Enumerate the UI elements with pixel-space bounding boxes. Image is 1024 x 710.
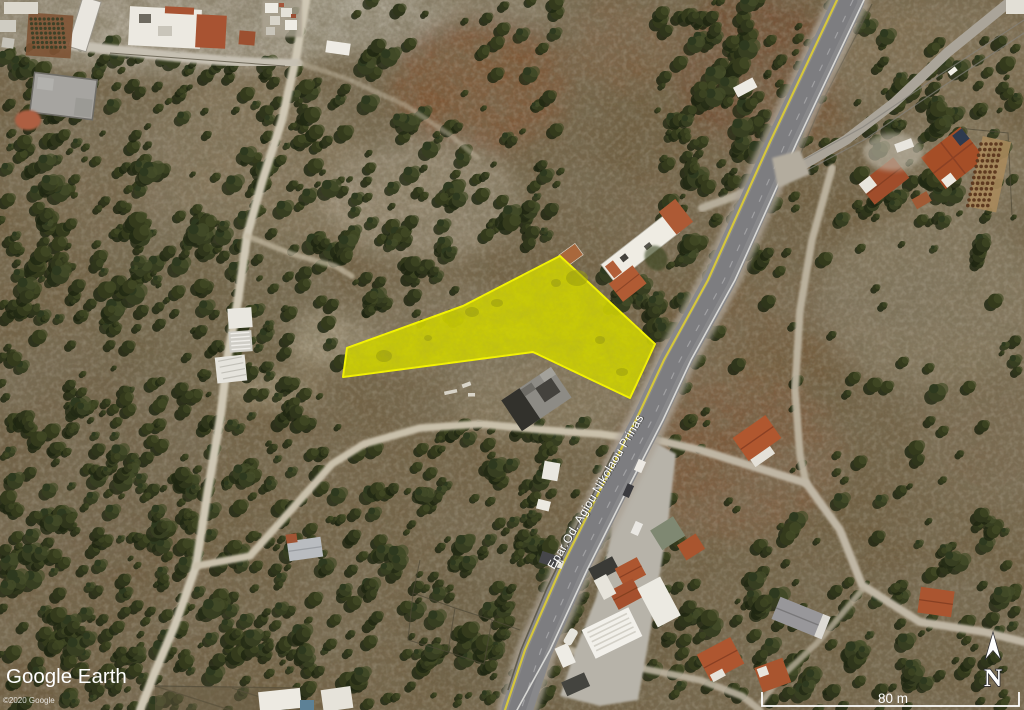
svg-text:N: N [984, 665, 1002, 692]
svg-text:Google Earth: Google Earth [6, 665, 127, 688]
svg-text:©2020 Google: ©2020 Google [3, 696, 55, 705]
svg-text:80 m: 80 m [878, 691, 908, 706]
